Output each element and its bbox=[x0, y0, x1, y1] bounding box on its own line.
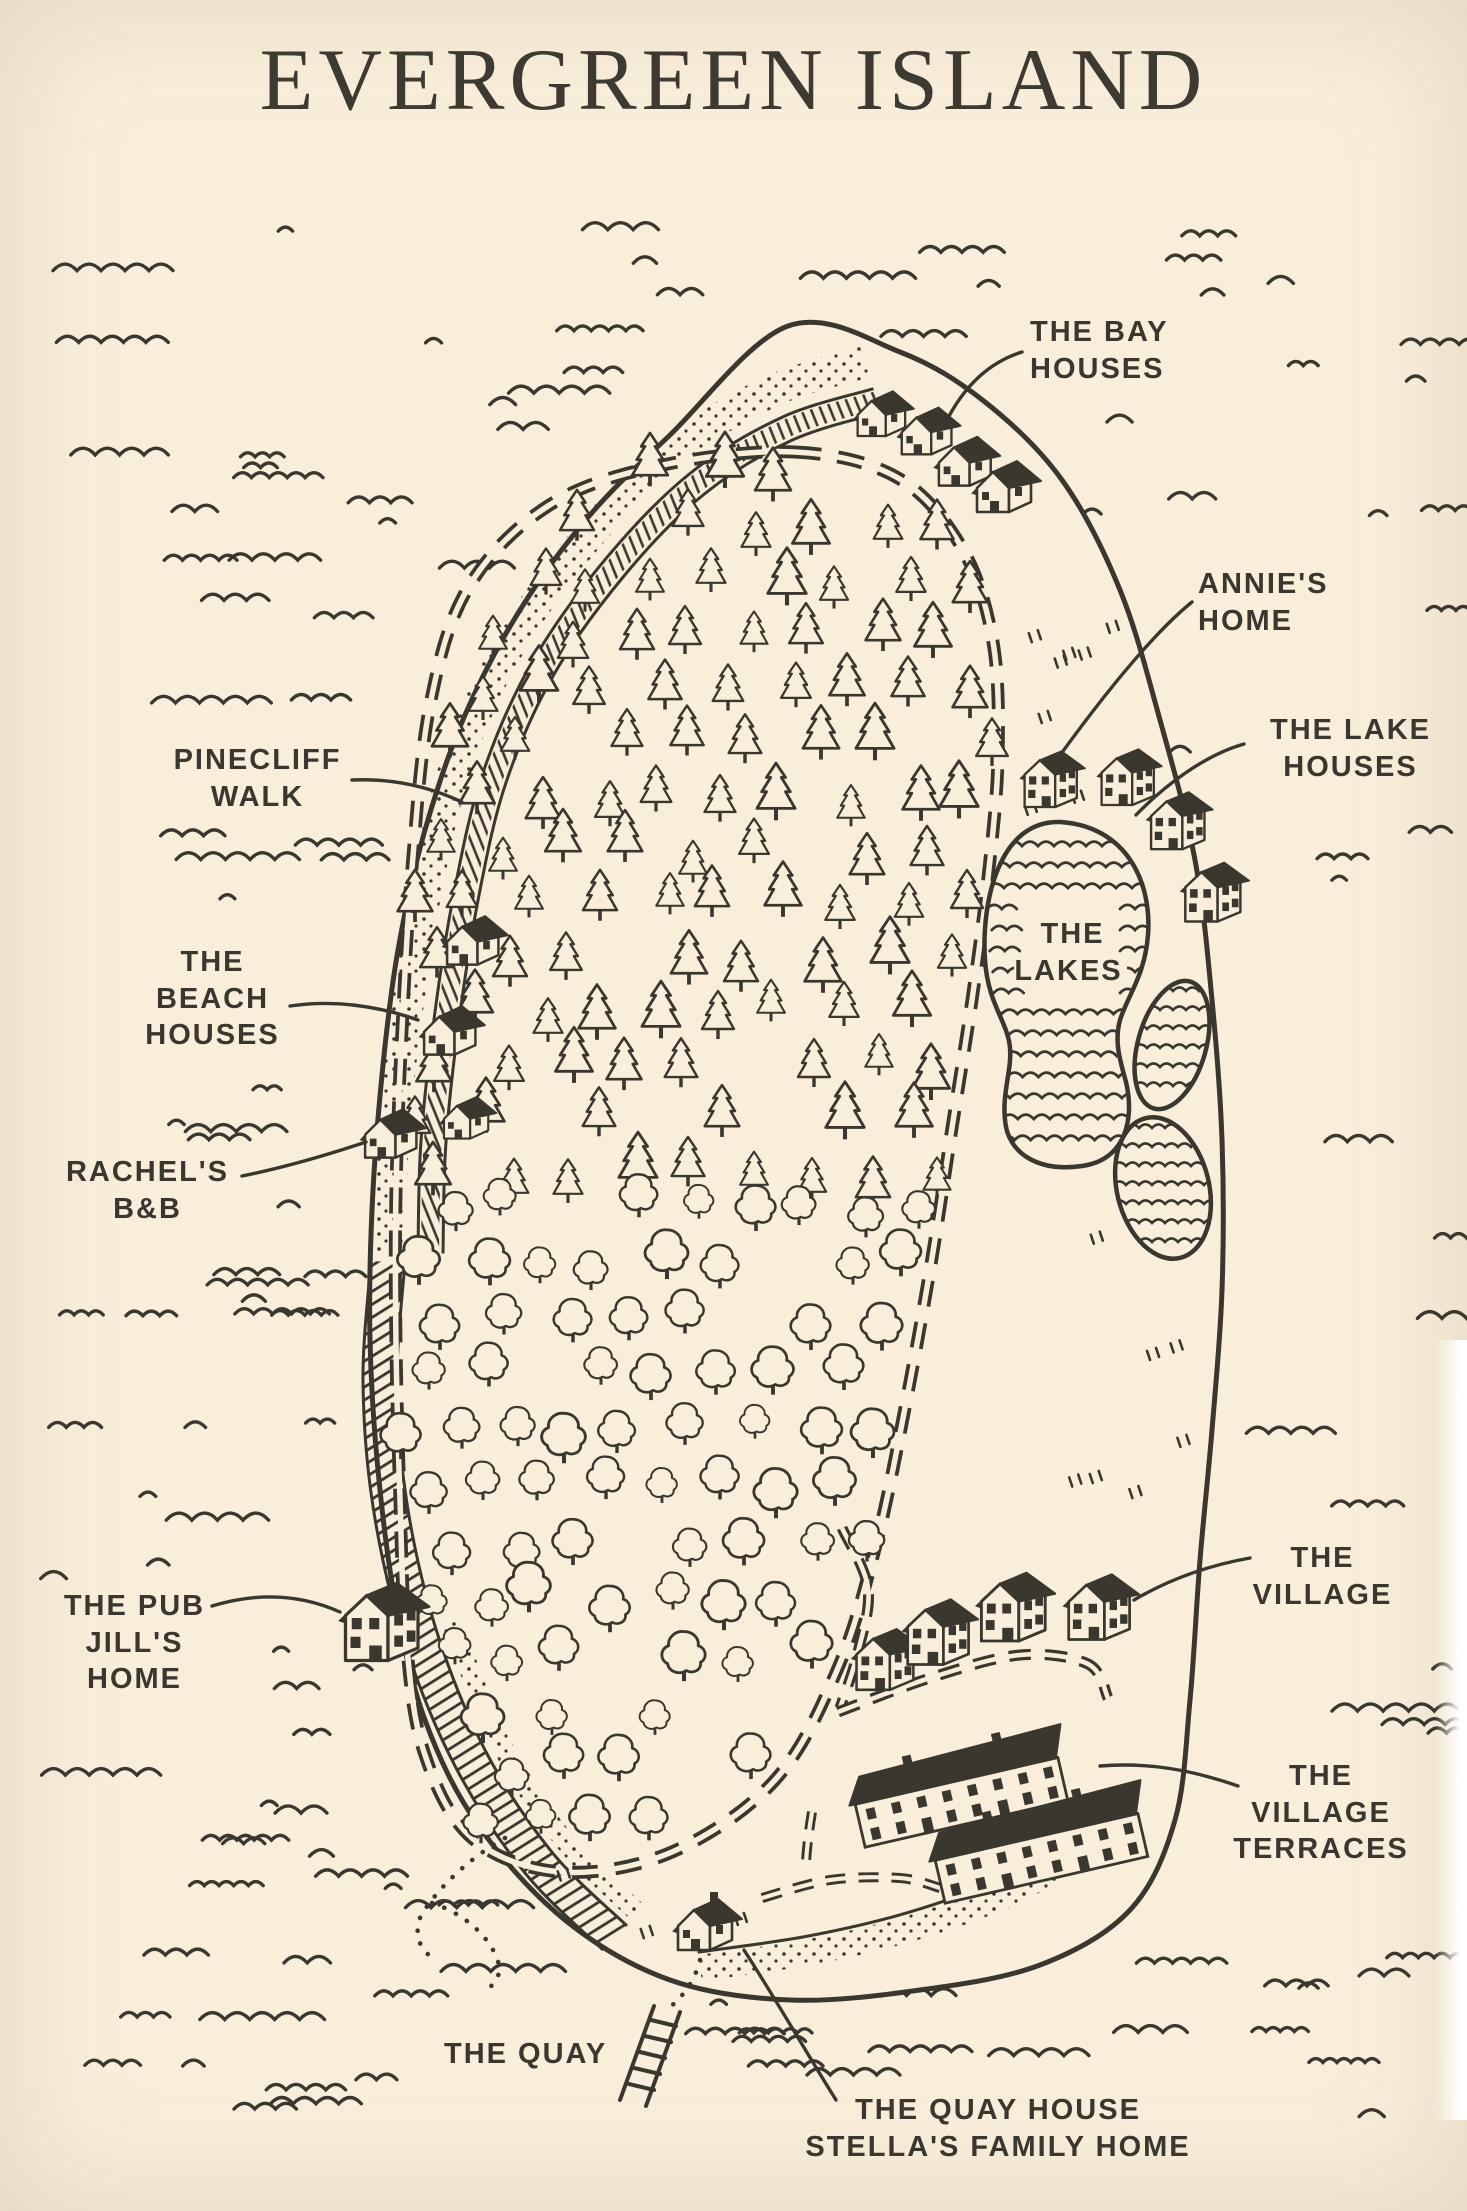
wave-mark bbox=[375, 1991, 448, 1996]
label-the-lakes-text: THE LAKES bbox=[1014, 918, 1126, 987]
wave-mark bbox=[244, 463, 278, 468]
wave-mark bbox=[291, 694, 350, 699]
wave-mark bbox=[1170, 746, 1190, 752]
label-quay-house: THE QUAY HOUSE STELLA'S FAMILY HOME bbox=[768, 2092, 1228, 2165]
wave-mark bbox=[380, 519, 396, 523]
wave-mark bbox=[1406, 376, 1425, 381]
wave-mark bbox=[176, 853, 299, 860]
label-beach-houses: THE BEACH HOUSES bbox=[125, 944, 300, 1054]
wave-mark bbox=[261, 1801, 277, 1805]
wave-mark bbox=[1332, 876, 1346, 880]
wave-mark bbox=[1435, 1234, 1467, 1238]
wave-mark bbox=[41, 1572, 67, 1579]
wave-mark bbox=[1325, 1135, 1392, 1141]
wave-mark bbox=[214, 1269, 280, 1275]
map-page: EVERGREEN ISLAND bbox=[0, 0, 1467, 2211]
wave-mark bbox=[295, 839, 382, 845]
wave-mark bbox=[441, 1964, 565, 1971]
wave-mark bbox=[71, 448, 169, 455]
wave-mark bbox=[733, 2036, 806, 2041]
wave-mark bbox=[881, 331, 966, 337]
wave-mark bbox=[234, 473, 323, 478]
wave-mark bbox=[278, 227, 292, 231]
wave-mark bbox=[1309, 2059, 1379, 2063]
label-pinecliff-walk: PINECLIFF WALK bbox=[155, 742, 360, 815]
wave-mark bbox=[234, 2103, 296, 2109]
wave-mark bbox=[223, 1838, 265, 1844]
wave-mark bbox=[490, 397, 516, 404]
wave-mark bbox=[284, 1956, 330, 1962]
wave-mark bbox=[121, 2012, 170, 2017]
wave-mark bbox=[314, 612, 373, 617]
wave-mark bbox=[657, 288, 702, 294]
scan-page-edge bbox=[1435, 1340, 1467, 2120]
wave-mark bbox=[557, 326, 643, 331]
label-village: THE VILLAGE bbox=[1240, 1540, 1405, 1613]
wave-mark bbox=[1201, 289, 1224, 295]
wave-mark bbox=[185, 1422, 206, 1428]
wave-mark bbox=[1317, 854, 1368, 859]
wave-mark bbox=[126, 1311, 177, 1316]
wave-mark bbox=[60, 1311, 104, 1315]
wave-mark bbox=[140, 1492, 156, 1496]
wave-mark bbox=[274, 1682, 319, 1688]
wave-mark bbox=[275, 1806, 327, 1813]
wave-mark bbox=[509, 386, 610, 393]
wave-mark bbox=[161, 830, 225, 836]
wave-mark bbox=[1401, 339, 1467, 344]
wave-mark bbox=[354, 1665, 372, 1670]
wave-mark bbox=[172, 505, 218, 511]
wave-mark bbox=[869, 2046, 972, 2052]
wave-mark bbox=[229, 554, 321, 560]
wave-mark bbox=[1417, 1312, 1467, 1319]
wave-mark bbox=[207, 1279, 308, 1285]
wave-mark bbox=[85, 2060, 141, 2065]
wave-mark bbox=[1288, 361, 1318, 365]
label-annies-home: ANNIE'S HOME bbox=[1198, 566, 1408, 639]
wave-mark bbox=[305, 1271, 366, 1277]
wave-mark bbox=[306, 1419, 335, 1423]
wave-mark bbox=[49, 1422, 102, 1427]
wave-mark bbox=[321, 854, 389, 860]
wave-mark bbox=[1265, 1980, 1328, 1986]
wave-mark bbox=[1422, 506, 1467, 511]
wave-mark bbox=[920, 246, 1005, 252]
label-quay: THE QUAY bbox=[444, 2036, 674, 2073]
wave-mark bbox=[202, 594, 269, 600]
wave-mark bbox=[1166, 255, 1220, 260]
wave-mark bbox=[266, 2084, 345, 2089]
wave-mark bbox=[1369, 511, 1386, 516]
wave-mark bbox=[356, 2074, 397, 2080]
rachels-bnb-leader bbox=[242, 1142, 366, 1176]
wave-mark bbox=[564, 367, 623, 372]
wave-mark bbox=[1409, 826, 1451, 832]
wave-mark bbox=[274, 1647, 289, 1651]
wave-mark bbox=[42, 1769, 161, 1776]
pub-leader bbox=[212, 1597, 340, 1612]
wave-mark bbox=[1136, 1958, 1226, 1963]
wave-mark bbox=[253, 1086, 281, 1090]
wave-mark bbox=[152, 696, 272, 703]
wave-mark bbox=[316, 1870, 408, 1876]
wave-mark bbox=[582, 223, 658, 230]
wave-mark bbox=[240, 453, 284, 457]
wave-mark bbox=[166, 1513, 268, 1520]
label-bay-houses: THE BAY HOUSES bbox=[1030, 314, 1270, 387]
wave-mark bbox=[185, 1125, 286, 1132]
wave-mark bbox=[989, 2049, 1089, 2056]
wave-mark bbox=[1359, 2110, 1384, 2117]
wave-mark bbox=[1332, 1501, 1404, 1506]
wave-mark bbox=[56, 336, 168, 342]
wave-mark bbox=[200, 2013, 325, 2020]
label-rachels-bnb: RACHEL'S B&B bbox=[45, 1154, 250, 1227]
wave-mark bbox=[1252, 2028, 1309, 2032]
label-the-lakes: THE LAKES bbox=[998, 916, 1143, 989]
wave-mark bbox=[164, 555, 237, 560]
wave-mark bbox=[278, 1201, 299, 1207]
wave-mark bbox=[188, 1134, 250, 1140]
wave-mark bbox=[348, 497, 412, 503]
wave-mark bbox=[1246, 1427, 1335, 1433]
label-lake-houses: THE LAKE HOUSES bbox=[1248, 712, 1453, 785]
wave-mark bbox=[1427, 606, 1467, 610]
wave-mark bbox=[220, 895, 235, 899]
wave-mark bbox=[1182, 231, 1236, 236]
wave-mark bbox=[190, 1882, 264, 1886]
wave-mark bbox=[294, 1729, 330, 1734]
wave-mark bbox=[800, 272, 915, 278]
wave-mark bbox=[183, 2060, 205, 2066]
label-pub-jills-home: THE PUB JILL'S HOME bbox=[42, 1588, 227, 1698]
wave-mark bbox=[1268, 276, 1293, 283]
label-village-terraces: THE VILLAGE TERRACES bbox=[1226, 1758, 1416, 1868]
wave-mark bbox=[148, 1559, 169, 1565]
wave-mark bbox=[310, 1850, 334, 1857]
wave-mark bbox=[711, 2000, 727, 2004]
wave-mark bbox=[1359, 1969, 1409, 1976]
wave-mark bbox=[498, 422, 549, 429]
wave-mark bbox=[169, 1120, 184, 1124]
wave-mark bbox=[633, 257, 656, 263]
wave-mark bbox=[426, 338, 442, 342]
wave-mark bbox=[1114, 2026, 1188, 2033]
wave-mark bbox=[978, 280, 999, 286]
wave-mark bbox=[144, 1949, 208, 1955]
wave-mark bbox=[1107, 415, 1132, 422]
wave-mark bbox=[53, 264, 173, 271]
wave-mark bbox=[1169, 492, 1216, 498]
shore-dotted-path-2 bbox=[432, 1903, 499, 1990]
wave-mark bbox=[202, 1835, 288, 1840]
wave-mark bbox=[385, 1884, 401, 1888]
wave-mark bbox=[242, 1295, 265, 1301]
